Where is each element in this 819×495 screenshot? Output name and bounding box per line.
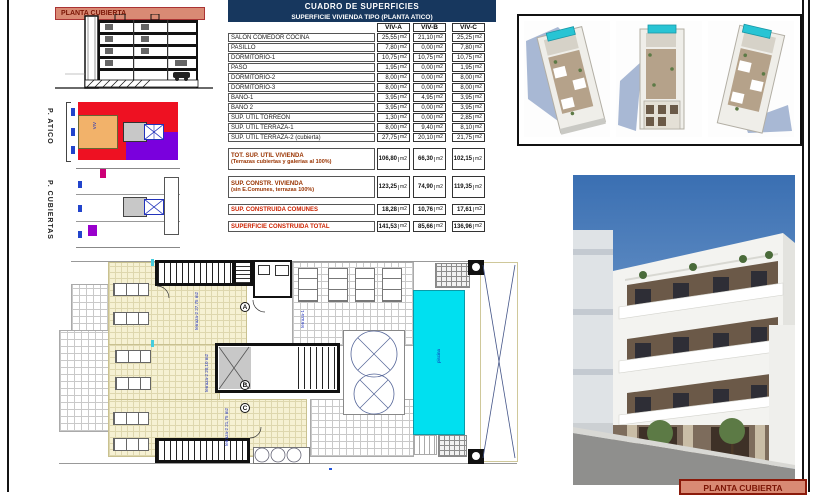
area-value: 27,75 [378, 135, 398, 141]
surface-table: CUADRO DE SUPERFICIES SUPERFICIE VIVIEND… [228, 0, 496, 232]
unit-label: m2 [434, 105, 445, 110]
table-column-header-row: VIV-A VIV-B VIV-C [228, 23, 496, 32]
row-label: PASILLO [228, 43, 375, 52]
row-label: TOT. SUP. UTIL VIVIENDA (Terrazas cubier… [228, 148, 375, 170]
value-cell: 102,15m2 [452, 148, 485, 170]
unit-label: m2 [473, 45, 484, 50]
area-value: 10,75 [453, 55, 473, 61]
row-label: BAÑO 2 [228, 103, 375, 112]
area-value: 8,10 [453, 125, 473, 131]
value-cell: 3,95m2 [377, 103, 410, 112]
area-value: 136,96 [453, 224, 473, 230]
area-value: 8,00 [453, 85, 473, 91]
area-value: 0,00 [414, 115, 434, 121]
column-header-spacer [228, 23, 375, 32]
unit-label: m2 [434, 65, 445, 70]
value-cell: 17,61m2 [452, 204, 485, 215]
unit-label: m2 [434, 157, 445, 162]
unit-label: m2 [434, 95, 445, 100]
unit-label: m2 [473, 55, 484, 60]
atico-dim-tick [71, 146, 75, 154]
value-cell: 25,25m2 [452, 33, 485, 42]
value-cell: 123,25m2 [377, 176, 410, 198]
area-value: 10,76 [414, 207, 434, 213]
atico-elevator-icon [144, 124, 164, 140]
building-section-drawing [55, 14, 215, 96]
value-cell: 8,00m2 [377, 123, 410, 132]
cubiertas-dim-tick [78, 205, 82, 212]
value-cell: 0,00m2 [413, 113, 446, 122]
unit-label: m2 [473, 65, 484, 70]
row-label: DORMITORIO-3 [228, 83, 375, 92]
value-cell: 10,75m2 [413, 53, 446, 62]
area-value: 7,80 [453, 45, 473, 51]
aerial-render-1 [524, 21, 610, 137]
aerial-render-2 [616, 21, 702, 137]
area-value: 1,95 [378, 65, 398, 71]
plate-title-box: PLANTA CUBIERTA [679, 479, 807, 495]
table-row: SUP. UTIL TERRAZA-1 8,00m2 9,40m2 8,10m2 [228, 123, 496, 132]
unit-label: m2 [473, 135, 484, 140]
area-value: 141,53 [378, 224, 398, 230]
unit-label: m2 [398, 224, 409, 229]
area-value: 106,80 [378, 156, 398, 162]
area-value: 4,95 [414, 95, 434, 101]
area-value: 25,55 [378, 35, 398, 41]
unit-label: m2 [398, 85, 409, 90]
area-value: 7,80 [378, 45, 398, 51]
unit-label: m2 [398, 35, 409, 40]
table-row: DORMITORIO-1 10,75m2 10,75m2 10,75m2 [228, 53, 496, 62]
atico-plan-label: P. ATICO [46, 108, 53, 145]
value-cell: 119,35m2 [452, 176, 485, 198]
table-row: DORMITORIO-3 8,00m2 0,00m2 8,00m2 [228, 83, 496, 92]
value-cell: 0,00m2 [413, 83, 446, 92]
value-cell: 66,30m2 [413, 148, 446, 170]
unit-label: m2 [473, 95, 484, 100]
value-cell: 3,95m2 [452, 93, 485, 102]
atico-unit-label: VIV [93, 122, 98, 129]
unit-label: m2 [398, 95, 409, 100]
area-value: 0,00 [414, 65, 434, 71]
summary-row-total-util: TOT. SUP. UTIL VIVIENDA (Terrazas cubier… [228, 148, 496, 170]
value-cell: 1,95m2 [452, 63, 485, 72]
value-cell: 1,30m2 [377, 113, 410, 122]
unit-label: m2 [398, 157, 409, 162]
unit-label: m2 [398, 125, 409, 130]
unit-label: m2 [473, 115, 484, 120]
table-row: PASO 1,95m2 0,00m2 1,95m2 [228, 63, 496, 72]
area-value: 123,25 [378, 184, 398, 190]
table-row: SUP. UTIL TORREON 1,30m2 0,00m2 2,85m2 [228, 113, 496, 122]
cubiertas-dim-tick [78, 181, 82, 188]
column-header-viv-a: VIV-A [377, 23, 410, 32]
column-header-viv-b: VIV-B [413, 23, 446, 32]
atico-mini-plan: VIV [76, 100, 180, 162]
value-cell: 27,75m2 [377, 133, 410, 142]
unit-label: m2 [473, 75, 484, 80]
table-row: BAÑO-1 3,95m2 4,95m2 3,95m2 [228, 93, 496, 102]
roof-floor-plan: piscina A B C terraza-2 27,75 m2 terraza… [57, 258, 519, 470]
unit-label: m2 [398, 135, 409, 140]
area-value: 21,10 [414, 35, 434, 41]
unit-label: m2 [473, 207, 484, 212]
value-cell: 10,76m2 [413, 204, 446, 215]
summary-row-total-construida: SUPERFICIE CONSTRUIDA TOTAL 141,53m2 85,… [228, 221, 496, 232]
row-label: SUP. UTIL TERRAZA-2 (cubierta) [228, 133, 375, 142]
facade-render [573, 175, 795, 485]
row-label: SALON COMEDOR COCINA [228, 33, 375, 42]
area-value: 3,95 [378, 105, 398, 111]
table-gap [228, 170, 496, 175]
summary-label: SUP. CONSTRUIDA COMUNES [231, 207, 374, 213]
unit-label: m2 [434, 35, 445, 40]
summary-sublabel: (sin E.Comunes, terrazas 100%) [231, 187, 374, 193]
unit-label: m2 [434, 125, 445, 130]
plan-linework [57, 258, 519, 470]
area-value: 3,95 [453, 105, 473, 111]
area-value: 0,00 [414, 45, 434, 51]
value-cell: 0,00m2 [413, 43, 446, 52]
unit-label: m2 [398, 75, 409, 80]
unit-label: m2 [398, 105, 409, 110]
area-value: 0,00 [414, 105, 434, 111]
cubiertas-plan-label: P. CUBIERTAS [46, 180, 53, 240]
summary-row-comunes: SUP. CONSTRUIDA COMUNES 18,28m2 10,76m2 … [228, 204, 496, 215]
value-cell: 21,75m2 [452, 133, 485, 142]
summary-sublabel: (Terrazas cubiertas y galerias al 100%) [231, 159, 374, 165]
summary-label: SUPERFICIE CONSTRUIDA TOTAL [231, 224, 374, 230]
atico-dim-tick [71, 108, 75, 116]
value-cell: 0,00m2 [413, 103, 446, 112]
unit-label: m2 [398, 115, 409, 120]
value-cell: 10,75m2 [377, 53, 410, 62]
value-cell: 141,53m2 [377, 221, 410, 232]
row-label: SUPERFICIE CONSTRUIDA TOTAL [228, 221, 375, 232]
area-value: 1,30 [378, 115, 398, 121]
area-value: 10,75 [378, 55, 398, 61]
value-cell: 8,00m2 [452, 83, 485, 92]
area-value: 9,40 [414, 125, 434, 131]
unit-label: m2 [434, 55, 445, 60]
value-cell: 1,95m2 [377, 63, 410, 72]
row-label: SUP. CONSTRUIDA COMUNES [228, 204, 375, 215]
sheet-border-right-inner [808, 0, 810, 492]
unit-label: m2 [473, 157, 484, 162]
unit-label: m2 [434, 115, 445, 120]
value-cell: 7,80m2 [452, 43, 485, 52]
cubiertas-side-room [164, 177, 179, 235]
area-value: 66,30 [414, 156, 434, 162]
area-value: 3,95 [453, 95, 473, 101]
unit-label: m2 [398, 45, 409, 50]
value-cell: 85,66m2 [413, 221, 446, 232]
table-subtitle: SUPERFICIE VIVIENDA TIPO (PLANTA ATICO) [228, 13, 496, 22]
summary-row-constr-vivienda: SUP. CONSTR. VIVIENDA (sin E.Comunes, te… [228, 176, 496, 198]
aerial-renders-box [517, 14, 802, 146]
unit-label: m2 [473, 185, 484, 190]
unit-label: m2 [473, 105, 484, 110]
cubiertas-dim-tick [78, 231, 82, 238]
atico-dim-tick [71, 128, 75, 136]
value-cell: 4,95m2 [413, 93, 446, 102]
value-cell: 8,10m2 [452, 123, 485, 132]
value-cell: 7,80m2 [377, 43, 410, 52]
atico-orange-unit: VIV [78, 115, 118, 149]
cubiertas-purple-patch [88, 225, 97, 236]
table-row: SUP. UTIL TERRAZA-2 (cubierta) 27,75m2 2… [228, 133, 496, 142]
area-value: 119,35 [453, 184, 473, 190]
value-cell: 20,10m2 [413, 133, 446, 142]
value-cell: 10,75m2 [452, 53, 485, 62]
value-cell: 0,00m2 [413, 63, 446, 72]
unit-label: m2 [473, 125, 484, 130]
value-cell: 0,00m2 [413, 73, 446, 82]
value-cell: 106,80m2 [377, 148, 410, 170]
unit-label: m2 [434, 185, 445, 190]
row-label: BAÑO-1 [228, 93, 375, 102]
value-cell: 136,96m2 [452, 221, 485, 232]
unit-label: m2 [398, 55, 409, 60]
area-value: 0,00 [414, 85, 434, 91]
cubiertas-magenta-patch [100, 169, 106, 178]
area-value: 0,00 [414, 75, 434, 81]
table-row: PASILLO 7,80m2 0,00m2 7,80m2 [228, 43, 496, 52]
table-row: BAÑO 2 3,95m2 0,00m2 3,95m2 [228, 103, 496, 112]
unit-label: m2 [434, 85, 445, 90]
area-value: 1,95 [453, 65, 473, 71]
area-value: 8,00 [453, 75, 473, 81]
cubiertas-mini-plan [76, 168, 180, 248]
unit-label: m2 [473, 35, 484, 40]
value-cell: 21,10m2 [413, 33, 446, 42]
column-header-viv-c: VIV-C [452, 23, 485, 32]
value-cell: 9,40m2 [413, 123, 446, 132]
row-label: PASO [228, 63, 375, 72]
row-label: SUP. UTIL TERRAZA-1 [228, 123, 375, 132]
area-value: 8,00 [378, 125, 398, 131]
unit-label: m2 [473, 224, 484, 229]
unit-label: m2 [398, 65, 409, 70]
unit-label: m2 [473, 85, 484, 90]
value-cell: 8,00m2 [452, 73, 485, 82]
cubiertas-elevator-icon [144, 199, 164, 215]
row-label: DORMITORIO-2 [228, 73, 375, 82]
area-value: 10,75 [414, 55, 434, 61]
row-label: DORMITORIO-1 [228, 53, 375, 62]
area-value: 3,95 [378, 95, 398, 101]
area-value: 25,25 [453, 35, 473, 41]
table-gap [228, 215, 496, 220]
value-cell: 3,95m2 [452, 103, 485, 112]
value-cell: 18,28m2 [377, 204, 410, 215]
area-value: 8,00 [378, 85, 398, 91]
unit-label: m2 [398, 185, 409, 190]
unit-label: m2 [434, 45, 445, 50]
sheet-border-right-outer [802, 0, 804, 492]
value-cell: 3,95m2 [377, 93, 410, 102]
unit-label: m2 [434, 207, 445, 212]
area-value: 21,75 [453, 135, 473, 141]
value-cell: 2,85m2 [452, 113, 485, 122]
area-value: 2,85 [453, 115, 473, 121]
table-gap [228, 198, 496, 203]
table-title: CUADRO DE SUPERFICIES [228, 0, 496, 13]
value-cell: 25,55m2 [377, 33, 410, 42]
area-value: 18,28 [378, 207, 398, 213]
sheet-border-left [7, 0, 9, 492]
table-gap [228, 142, 496, 147]
row-label: SUP. UTIL TORREON [228, 113, 375, 122]
area-value: 17,61 [453, 207, 473, 213]
area-value: 74,90 [414, 184, 434, 190]
unit-label: m2 [434, 75, 445, 80]
aerial-render-3 [708, 21, 794, 137]
value-cell: 8,00m2 [377, 73, 410, 82]
table-row: SALON COMEDOR COCINA 25,55m2 21,10m2 25,… [228, 33, 496, 42]
unit-label: m2 [398, 207, 409, 212]
unit-label: m2 [434, 135, 445, 140]
value-cell: 8,00m2 [377, 83, 410, 92]
area-value: 85,66 [414, 224, 434, 230]
area-value: 8,00 [378, 75, 398, 81]
row-label: SUP. CONSTR. VIVIENDA (sin E.Comunes, te… [228, 176, 375, 198]
area-value: 102,15 [453, 156, 473, 162]
area-value: 20,10 [414, 135, 434, 141]
unit-label: m2 [434, 224, 445, 229]
table-row: DORMITORIO-2 8,00m2 0,00m2 8,00m2 [228, 73, 496, 82]
value-cell: 74,90m2 [413, 176, 446, 198]
